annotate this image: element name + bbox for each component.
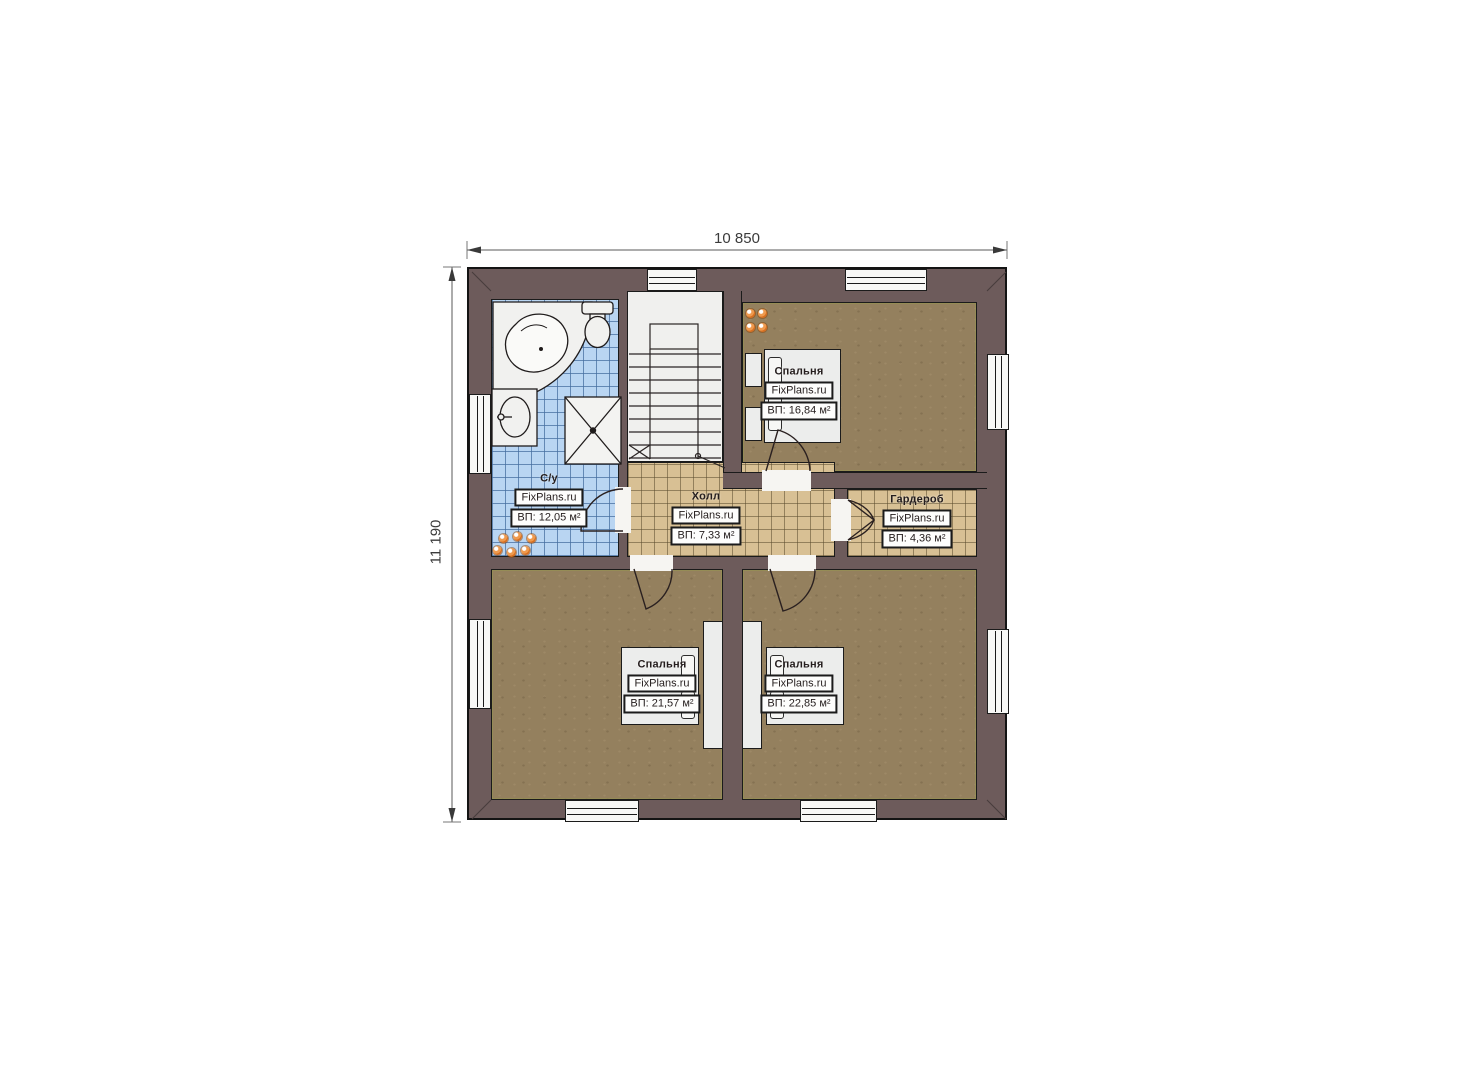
room-name: Гардероб xyxy=(881,493,952,507)
floor-plan: С/у FixPlans.ru ВП: 12,05 м² Холл FixPla… xyxy=(467,267,1007,820)
radiator-icon xyxy=(521,546,530,555)
watermark-tag: FixPlans.ru xyxy=(671,506,740,525)
room-name: С/у xyxy=(510,472,587,486)
window-glazing xyxy=(995,356,1002,428)
room-name: Холл xyxy=(670,490,741,504)
window-glazing xyxy=(802,808,875,815)
room-stairwell-floor xyxy=(627,291,723,462)
door-opening-bedroom-top-right xyxy=(762,470,811,491)
radiator-icon xyxy=(513,532,522,541)
label-bedroom-bottom-right: Спальня FixPlans.ru ВП: 22,85 м² xyxy=(760,658,837,713)
window-glazing xyxy=(847,277,925,284)
top-dimension-label: 10 850 xyxy=(714,230,760,247)
radiator-icon xyxy=(507,548,516,557)
radiator-icon xyxy=(527,534,536,543)
room-name: Спальня xyxy=(760,365,837,379)
area-tag: ВП: 12,05 м² xyxy=(510,509,587,528)
left-dimension-label: 11 190 xyxy=(428,520,445,565)
window-top-bedroom xyxy=(845,269,927,291)
window-top-stairwell xyxy=(647,269,697,291)
watermark-tag: FixPlans.ru xyxy=(764,381,833,400)
watermark-tag: FixPlans.ru xyxy=(514,488,583,507)
area-tag: ВП: 21,57 м² xyxy=(623,695,700,714)
area-tag: ВП: 16,84 м² xyxy=(760,402,837,421)
area-tag: ВП: 22,85 м² xyxy=(760,695,837,714)
window-glazing xyxy=(567,808,637,815)
radiator-icon xyxy=(493,546,502,555)
radiator-icon xyxy=(499,534,508,543)
room-name: Спальня xyxy=(623,658,700,672)
window-glazing xyxy=(649,277,695,284)
radiator-icon xyxy=(746,323,755,332)
label-wardrobe: Гардероб FixPlans.ru ВП: 4,36 м² xyxy=(881,493,952,548)
label-bathroom: С/у FixPlans.ru ВП: 12,05 м² xyxy=(510,472,587,527)
label-bedroom-bottom-left: Спальня FixPlans.ru ВП: 21,57 м² xyxy=(623,658,700,713)
watermark-tag: FixPlans.ru xyxy=(627,674,696,693)
window-right-bedroom-top xyxy=(987,354,1009,430)
window-left-bathroom xyxy=(469,394,491,474)
window-glazing xyxy=(477,621,484,707)
window-glazing xyxy=(995,631,1002,712)
label-bedroom-top-right: Спальня FixPlans.ru ВП: 16,84 м² xyxy=(760,365,837,420)
window-bottom-left xyxy=(565,800,639,822)
door-opening-bedroom-bottom-left xyxy=(630,555,673,571)
radiator-icon xyxy=(758,309,767,318)
window-bottom-right xyxy=(800,800,877,822)
floor-plan-canvas: 10 850 11 190 xyxy=(0,0,1473,1080)
wall-stairwell-right xyxy=(723,291,742,489)
window-left-bedroom xyxy=(469,619,491,709)
door-opening-wardrobe xyxy=(831,499,851,541)
closet xyxy=(703,621,723,749)
area-tag: ВП: 4,36 м² xyxy=(881,530,952,549)
radiator-icon xyxy=(758,323,767,332)
window-right-bedroom-bottom xyxy=(987,629,1009,714)
watermark-tag: FixPlans.ru xyxy=(764,674,833,693)
radiator-icon xyxy=(746,309,755,318)
window-glazing xyxy=(477,396,484,472)
label-hall: Холл FixPlans.ru ВП: 7,33 м² xyxy=(670,490,741,545)
door-opening-bedroom-bottom-right xyxy=(768,555,816,571)
room-name: Спальня xyxy=(760,658,837,672)
area-tag: ВП: 7,33 м² xyxy=(670,527,741,546)
door-opening-bathroom xyxy=(615,487,631,533)
watermark-tag: FixPlans.ru xyxy=(882,509,951,528)
closet xyxy=(742,621,762,749)
